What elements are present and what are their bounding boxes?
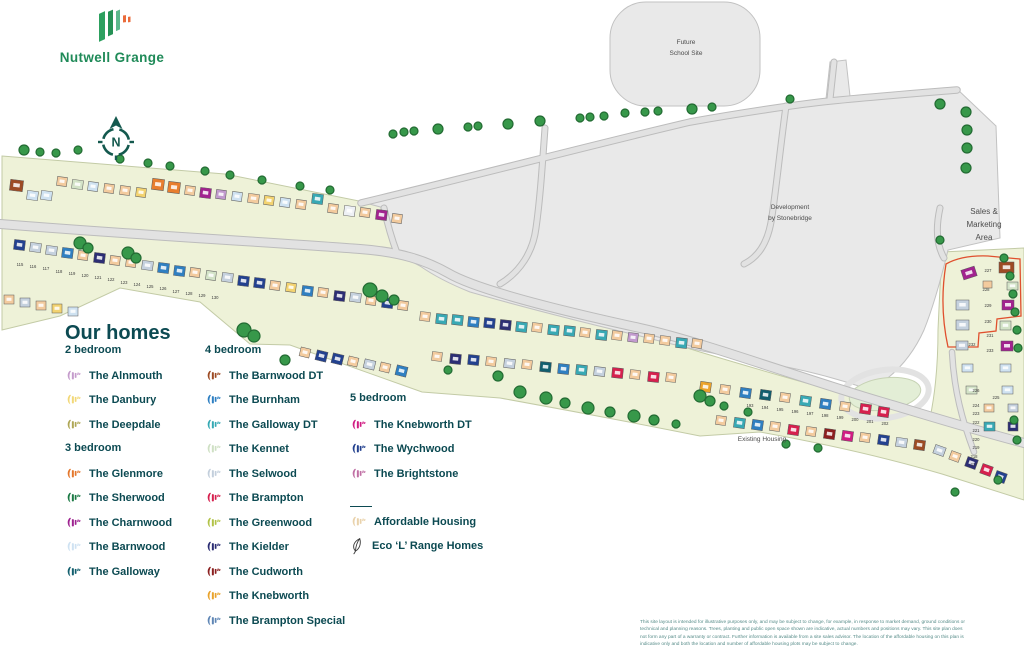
legend-title: Our homes: [65, 322, 171, 345]
svg-text:120: 120: [82, 273, 90, 278]
legend-item-label: The Kielder: [229, 541, 289, 553]
house-plot: [819, 398, 831, 409]
homes-glyph-icon: [205, 442, 221, 456]
svg-text:224: 224: [973, 403, 981, 408]
house-plot: [956, 300, 969, 310]
house-plot: [199, 187, 211, 198]
house-plot: [759, 389, 771, 400]
legend-item-label: The Greenwood: [229, 517, 312, 529]
homes-glyph-icon: [205, 516, 221, 530]
svg-text:117: 117: [43, 266, 50, 271]
homes-glyph-icon: [65, 491, 81, 505]
legend-item-label: The Galloway: [89, 566, 160, 578]
house-plot: [859, 432, 870, 442]
house-plot: [36, 301, 46, 310]
homes-glyph-icon: [350, 467, 366, 481]
house-plot: [1000, 364, 1011, 372]
homes-glyph-icon: [65, 516, 81, 530]
house-plot: [468, 354, 480, 365]
homes-glyph-icon: [205, 565, 221, 579]
house-plot: [660, 336, 671, 346]
house-plot: [799, 395, 811, 406]
svg-text:115: 115: [17, 262, 24, 267]
house-plot: [237, 275, 249, 286]
svg-text:233: 233: [987, 348, 995, 353]
house-plot: [522, 360, 533, 370]
homes-glyph-icon: [65, 369, 81, 383]
legend-item-label: The Brampton: [229, 492, 304, 504]
svg-text:200: 200: [852, 417, 860, 422]
house-plot: [301, 285, 313, 296]
house-plot: [1002, 386, 1013, 394]
house-plot: [167, 181, 180, 193]
house-plot: [877, 406, 889, 417]
compass-icon: N: [94, 114, 138, 164]
house-plot: [231, 191, 242, 201]
legend-item-the-burnham: The Burnham: [205, 390, 300, 410]
house-plot: [109, 255, 120, 265]
house-plot: [87, 181, 98, 191]
svg-text:119: 119: [69, 271, 76, 276]
svg-text:121: 121: [95, 275, 103, 280]
legend-item-label: The Barnwood DT: [229, 370, 323, 382]
house-plot: [20, 298, 30, 307]
svg-text:130: 130: [212, 295, 220, 300]
house-plot: [516, 321, 528, 332]
homes-glyph-icon: [205, 540, 221, 554]
legend-item-the-brampton-special: The Brampton Special: [205, 611, 345, 631]
house-plot: [119, 185, 130, 195]
house-plot: [450, 353, 462, 364]
house-plot: [692, 339, 703, 349]
svg-text:220: 220: [973, 437, 981, 442]
house-plot: [26, 190, 38, 200]
legend-item-the-deepdale: The Deepdale: [65, 415, 161, 435]
svg-text:201: 201: [867, 419, 875, 424]
legend-item-label: The Selwood: [229, 468, 297, 480]
house-plot: [391, 213, 402, 223]
house-plot: [468, 316, 480, 327]
legend-item-the-sherwood: The Sherwood: [65, 488, 165, 508]
house-plot: [895, 437, 907, 447]
house-plot: [805, 426, 816, 436]
legend-item-label: The Kennet: [229, 443, 289, 455]
homes-glyph-icon: [205, 491, 221, 505]
homes-glyph-icon: [205, 614, 221, 628]
legend-item-label: Eco ‘L’ Range Homes: [372, 540, 483, 552]
house-plot: [823, 428, 835, 439]
homes-glyph-icon: [350, 418, 366, 432]
house-plot: [29, 242, 41, 252]
house-plot: [333, 290, 345, 301]
svg-text:221: 221: [973, 428, 981, 433]
legend-item-label: The Brightstone: [374, 468, 458, 480]
house-plot: [859, 403, 871, 414]
house-plot: [500, 319, 512, 330]
house-plot: [40, 190, 52, 200]
legend-item-the-wychwood: The Wychwood: [350, 439, 454, 459]
legend-item-label: The Barnwood: [89, 541, 165, 553]
legend-item-label: The Deepdale: [89, 419, 161, 431]
svg-text:197: 197: [807, 411, 815, 416]
house-plot: [839, 401, 850, 411]
svg-text:227: 227: [985, 268, 993, 273]
legend-item-label: The Brampton Special: [229, 615, 345, 627]
disclaimer-text: This site layout is intended for illustr…: [640, 619, 968, 649]
legend-item-the-galloway: The Galloway: [65, 562, 160, 582]
legend-item-the-charnwood: The Charnwood: [65, 513, 172, 533]
house-plot: [913, 439, 925, 450]
house-plot: [1000, 321, 1011, 330]
house-plot: [999, 262, 1014, 273]
svg-text:198: 198: [822, 413, 830, 418]
svg-text:230: 230: [985, 319, 993, 324]
house-plot: [769, 421, 780, 431]
house-plot: [269, 280, 280, 290]
house-plot: [666, 373, 677, 383]
house-plot: [285, 282, 296, 292]
svg-text:228: 228: [983, 287, 991, 292]
legend-item-label: Affordable Housing: [374, 516, 476, 528]
legend-item-the-kielder: The Kielder: [205, 537, 289, 557]
house-plot: [343, 205, 355, 216]
house-plot: [751, 419, 763, 430]
svg-text:123: 123: [121, 280, 129, 285]
house-plot: [9, 179, 23, 192]
svg-text:116: 116: [30, 264, 37, 269]
house-plot: [151, 178, 164, 190]
legend-item-the-brightstone: The Brightstone: [350, 464, 458, 484]
legend-item-the-knebworth: The Knebworth: [205, 586, 309, 606]
svg-text:N: N: [111, 136, 120, 150]
legend-item-eco-l-range-homes: Eco ‘L’ Range Homes: [350, 536, 483, 556]
house-plot: [630, 370, 641, 380]
house-plot: [295, 199, 306, 209]
house-plot: [71, 179, 83, 189]
house-plot: [484, 317, 496, 328]
legend-item-the-knebworth-dt: The Knebworth DT: [350, 415, 472, 435]
house-plot: [779, 392, 790, 402]
homes-glyph-icon: [205, 369, 221, 383]
house-plot: [157, 262, 169, 273]
legend-divider: [350, 506, 372, 507]
svg-text:127: 127: [173, 289, 181, 294]
brand-logo-icon: [90, 5, 134, 45]
house-plot: [787, 424, 799, 435]
svg-text:218: 218: [971, 454, 979, 459]
house-plot: [733, 417, 745, 428]
house-plot: [564, 325, 576, 336]
house-plot: [215, 189, 226, 199]
house-plot: [173, 265, 185, 276]
house-plot: [247, 193, 259, 203]
legend-header-4-bedroom: 4 bedroom: [205, 344, 261, 356]
svg-text:196: 196: [792, 409, 800, 414]
house-plot: [135, 187, 146, 197]
house-plot: [1001, 341, 1013, 351]
legend-item-label: The Cudworth: [229, 566, 303, 578]
house-plot: [962, 364, 973, 372]
house-plot: [432, 352, 443, 362]
house-plot: [279, 197, 290, 207]
eco-leaf-icon: [350, 537, 364, 555]
svg-text:232: 232: [969, 342, 977, 347]
house-plot: [205, 270, 216, 280]
svg-text:193: 193: [747, 403, 755, 408]
homes-glyph-icon: [65, 540, 81, 554]
brand-name: Nutwell Grange: [38, 50, 186, 65]
house-plot: [548, 324, 560, 335]
legend-item-label: The Burnham: [229, 394, 300, 406]
homes-glyph-icon: [65, 565, 81, 579]
house-plot: [719, 384, 730, 394]
svg-text:122: 122: [108, 277, 116, 282]
legend-item-the-alnmouth: The Alnmouth: [65, 366, 163, 386]
house-plot: [580, 328, 591, 338]
svg-text:226: 226: [973, 388, 981, 393]
homes-glyph-icon: [205, 418, 221, 432]
legend-item-the-cudworth: The Cudworth: [205, 562, 303, 582]
homes-glyph-icon: [205, 393, 221, 407]
house-plot: [13, 239, 25, 250]
house-plot: [644, 334, 655, 344]
homes-glyph-icon: [350, 515, 366, 529]
homes-glyph-icon: [205, 467, 221, 481]
legend-item-label: The Sherwood: [89, 492, 165, 504]
house-plot: [504, 358, 516, 368]
legend-item-the-barnwood: The Barnwood: [65, 537, 165, 557]
legend-item-label: The Wychwood: [374, 443, 454, 455]
house-plot: [594, 366, 606, 376]
house-plot: [984, 422, 995, 431]
legend-item-the-danbury: The Danbury: [65, 390, 156, 410]
homes-glyph-icon: [65, 393, 81, 407]
legend-item-the-brampton: The Brampton: [205, 488, 304, 508]
svg-text:195: 195: [777, 407, 785, 412]
house-plot: [45, 245, 57, 255]
legend-header-2-bedroom: 2 bedroom: [65, 344, 121, 356]
house-plot: [452, 314, 464, 325]
house-plot: [263, 195, 274, 205]
svg-text:125: 125: [147, 284, 155, 289]
svg-text:225: 225: [993, 395, 1001, 400]
legend-item-the-barnwood-dt: The Barnwood DT: [205, 366, 323, 386]
svg-text:124: 124: [134, 282, 142, 287]
house-plot: [311, 193, 323, 204]
legend-item-label: The Charnwood: [89, 517, 172, 529]
site-plan-page: 1151161171181191201211221231241251261271…: [0, 0, 1024, 651]
homes-glyph-icon: [350, 442, 366, 456]
legend-item-label: The Galloway DT: [229, 419, 318, 431]
house-plot: [596, 329, 608, 340]
house-plot: [221, 272, 233, 282]
legend-item-the-galloway-dt: The Galloway DT: [205, 415, 318, 435]
svg-text:Existing Housing: Existing Housing: [738, 436, 787, 443]
house-plot: [436, 313, 448, 324]
svg-text:118: 118: [56, 269, 63, 274]
house-plot: [349, 292, 361, 302]
legend-item-label: The Danbury: [89, 394, 156, 406]
legend-item-label: The Knebworth DT: [374, 419, 472, 431]
legend-item-label: The Glenmore: [89, 468, 163, 480]
legend-item-the-glenmore: The Glenmore: [65, 464, 163, 484]
legend-item-affordable-housing: Affordable Housing: [350, 512, 476, 532]
house-plot: [93, 252, 105, 263]
svg-text:129: 129: [199, 293, 207, 298]
svg-text:219: 219: [973, 445, 981, 450]
house-plot: [56, 176, 67, 186]
homes-glyph-icon: [65, 418, 81, 432]
svg-text:126: 126: [160, 286, 168, 291]
house-plot: [676, 337, 688, 348]
svg-text:199: 199: [837, 415, 845, 420]
house-plot: [420, 312, 431, 322]
svg-text:231: 231: [987, 333, 995, 338]
house-plot: [956, 341, 968, 350]
house-plot: [612, 331, 623, 341]
house-plot: [540, 361, 552, 372]
house-plot: [68, 307, 78, 316]
house-plot: [4, 295, 14, 304]
house-plot: [375, 209, 387, 220]
house-plot: [253, 277, 265, 288]
legend-item-label: The Alnmouth: [89, 370, 163, 382]
house-plot: [576, 364, 588, 375]
homes-glyph-icon: [65, 467, 81, 481]
homes-glyph-icon: [205, 589, 221, 603]
house-plot: [612, 367, 624, 378]
house-plot: [189, 267, 200, 277]
house-plot: [52, 304, 62, 313]
house-plot: [558, 363, 570, 374]
house-plot: [715, 415, 726, 425]
svg-text:202: 202: [882, 421, 890, 426]
house-plot: [61, 247, 73, 258]
legend-header-5-bedroom: 5 bedroom: [350, 392, 406, 404]
legend-item-the-kennet: The Kennet: [205, 439, 289, 459]
svg-text:128: 128: [186, 291, 194, 296]
house-plot: [103, 183, 114, 193]
house-plot: [1008, 404, 1018, 412]
house-plot: [532, 323, 543, 333]
house-plot: [317, 287, 328, 297]
legend-item-the-selwood: The Selwood: [205, 464, 297, 484]
house-plot: [184, 185, 195, 195]
house-plot: [1007, 282, 1018, 290]
house-plot: [628, 333, 639, 343]
svg-text:229: 229: [985, 303, 993, 308]
house-plot: [739, 387, 751, 398]
house-plot: [956, 320, 969, 330]
house-plot: [648, 371, 660, 382]
house-plot: [359, 207, 370, 217]
legend-item-label: The Knebworth: [229, 590, 309, 602]
house-plot: [141, 260, 153, 270]
svg-text:223: 223: [973, 411, 981, 416]
legend-header-3-bedroom: 3 bedroom: [65, 442, 121, 454]
svg-text:222: 222: [973, 420, 981, 425]
house-plot: [877, 434, 889, 445]
house-plot: [984, 404, 994, 412]
svg-text:217: 217: [971, 462, 979, 467]
house-plot: [327, 203, 338, 213]
house-plot: [841, 430, 853, 441]
legend-item-the-greenwood: The Greenwood: [205, 513, 312, 533]
svg-text:194: 194: [762, 405, 770, 410]
house-plot: [486, 357, 497, 367]
